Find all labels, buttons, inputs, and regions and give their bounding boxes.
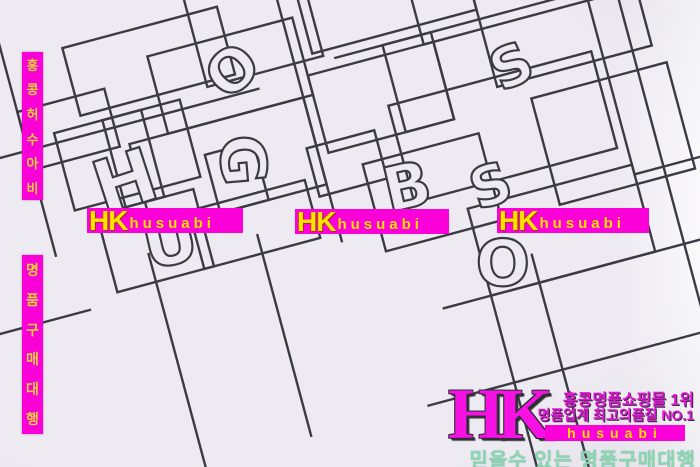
watermark-husuabi-label: husuabi [129, 215, 215, 233]
watermark-husuabi-label: husuabi [539, 215, 625, 233]
logo-hk: HK [448, 385, 546, 443]
watermark: HK husuabi [295, 209, 449, 234]
watermark: HK husuabi [497, 208, 649, 233]
site-logo: HK 홍콩명품쇼핑몰 1위 명품업계 최고의품질 NO.1 husuabi 믿을… [438, 372, 700, 467]
product-photo: HUGOBSSO 홍콩허수아비 명품구매대행 HK husuabi HK hus… [0, 0, 700, 467]
logo-husuabi-label: husuabi [567, 426, 663, 440]
watermark: HK husuabi [87, 208, 243, 233]
logo-slogan-no1: 명품업계 최고의품질 NO.1 [538, 405, 694, 425]
logo-tagline: 믿을수 있는 명품구매대행 [469, 444, 696, 467]
logo-husuabi-badge: husuabi [545, 425, 685, 441]
watermark-husuabi-label: husuabi [337, 216, 423, 234]
watermark-hk-label: HK [89, 209, 127, 233]
side-banner-luxury-agency: 명품구매대행 [22, 255, 43, 434]
watermark-hk-label: HK [297, 210, 335, 234]
side-banner-hongkong-husuabi: 홍콩허수아비 [22, 52, 43, 200]
watermark-hk-label: HK [499, 209, 537, 233]
